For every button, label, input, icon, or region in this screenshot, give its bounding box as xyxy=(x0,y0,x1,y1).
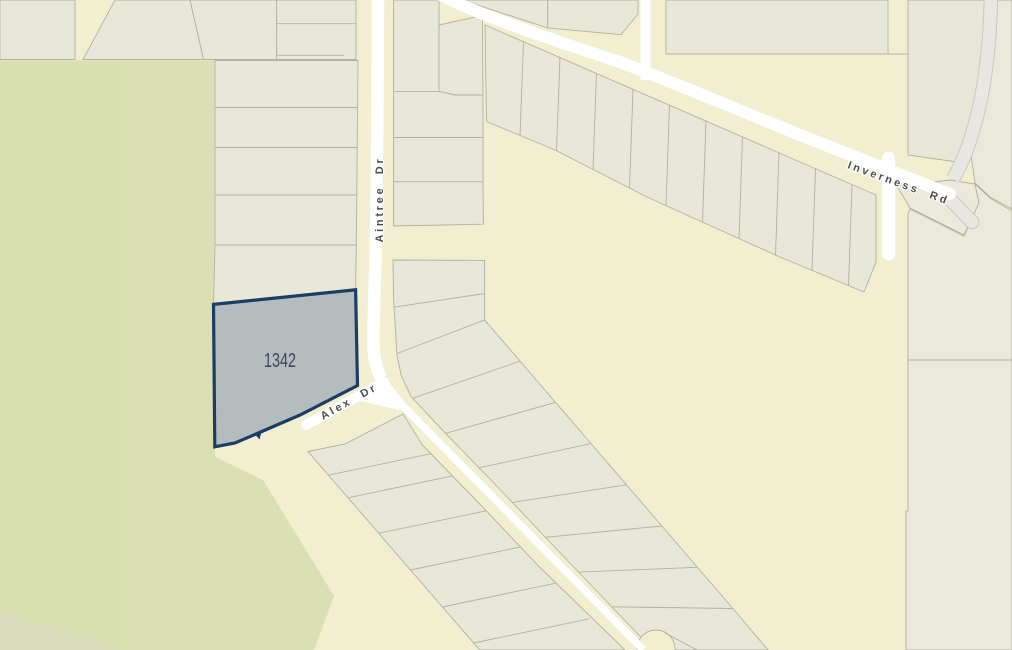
svg-text:1342: 1342 xyxy=(264,348,296,371)
svg-text:Aintree Dr: Aintree Dr xyxy=(374,157,386,243)
